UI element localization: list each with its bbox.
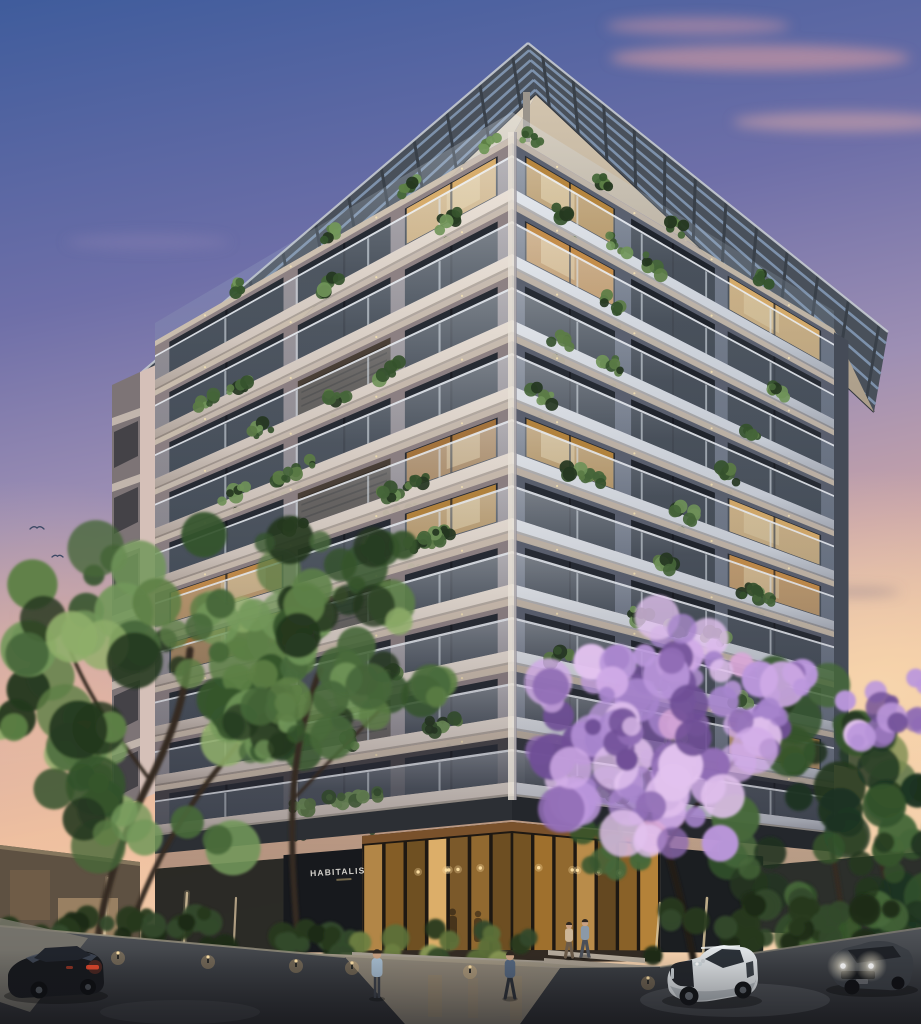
foliage <box>206 589 236 619</box>
shape <box>531 133 538 140</box>
shape <box>664 216 677 229</box>
foliage <box>675 719 712 756</box>
scene-canvas: HABITALIS <box>0 0 921 1024</box>
pendant-light <box>571 868 574 871</box>
interior-figure-head <box>475 911 481 917</box>
shape <box>678 220 690 232</box>
foliage <box>793 678 811 696</box>
foliage <box>622 717 641 736</box>
foliage <box>785 783 813 811</box>
pendant-light <box>456 868 459 871</box>
shape <box>236 278 245 287</box>
foliage <box>835 690 856 711</box>
hedge-shrub <box>744 894 766 916</box>
shape <box>486 136 495 145</box>
foliage <box>550 747 592 789</box>
foliage <box>203 825 233 855</box>
foliage <box>5 632 49 676</box>
foliage <box>599 687 615 703</box>
bottom-vignette <box>0 950 921 1024</box>
foliage <box>107 633 163 689</box>
foliage <box>345 663 391 709</box>
foliage <box>426 687 447 708</box>
foliage <box>175 659 205 689</box>
foliage <box>670 684 709 723</box>
foliage <box>769 707 788 726</box>
foliage <box>353 527 393 567</box>
hedge-shrub <box>660 909 682 931</box>
foliage <box>538 786 585 833</box>
foliage <box>310 714 355 759</box>
foliage <box>818 788 863 833</box>
lobby-glass-panel <box>534 835 552 950</box>
foliage <box>636 791 667 822</box>
foliage <box>887 712 908 733</box>
foliage <box>849 851 874 876</box>
foliage <box>701 774 745 818</box>
foliage <box>857 747 900 790</box>
pendant-light <box>445 868 448 871</box>
foliage <box>667 614 697 644</box>
foliage <box>616 749 637 770</box>
pergola-beam <box>634 128 636 188</box>
foliage <box>605 859 627 881</box>
foliage <box>126 819 162 855</box>
interior-figure-head <box>449 909 456 916</box>
foliage <box>287 725 305 743</box>
hedge-shrub <box>882 900 900 918</box>
hedge-shrub <box>141 913 166 938</box>
hedge-shrub <box>683 907 710 934</box>
hedge-shrub <box>849 894 881 926</box>
foliage <box>310 531 331 552</box>
corner-pier <box>508 132 517 800</box>
foliage <box>93 820 119 846</box>
foliage <box>862 784 906 828</box>
foliage <box>385 608 412 635</box>
foliage <box>292 568 332 608</box>
foliage <box>276 613 321 658</box>
foliage <box>241 687 280 726</box>
hedge-shrub <box>439 931 459 951</box>
hedge-shrub <box>714 916 738 940</box>
foliage <box>275 692 297 714</box>
architectural-render: HABITALIS <box>0 0 921 1024</box>
torso <box>581 926 589 940</box>
pendant-light <box>576 869 579 872</box>
foliage <box>702 825 739 862</box>
foliage <box>657 827 689 859</box>
foliage <box>49 701 107 759</box>
torso <box>565 928 573 942</box>
hedge-shrub <box>99 916 114 931</box>
foliage <box>133 578 182 627</box>
shape <box>406 177 418 189</box>
lobby-glass-panel <box>407 841 425 951</box>
pendant-light <box>537 866 540 869</box>
foliage <box>171 806 204 839</box>
hedge-shrub <box>197 907 211 921</box>
shape <box>329 222 342 235</box>
foliage <box>874 832 894 852</box>
foliage <box>884 862 905 883</box>
hedge-shrub <box>275 933 291 949</box>
foliage <box>739 858 761 880</box>
shape <box>522 131 529 138</box>
hedge-shrub <box>788 896 815 923</box>
foliage <box>313 681 349 717</box>
foliage <box>585 719 601 735</box>
hedge-shrub <box>483 925 501 943</box>
shape <box>599 173 607 181</box>
foliage <box>685 807 706 828</box>
foliage <box>847 722 876 751</box>
foliage <box>88 773 109 794</box>
foliage <box>731 727 778 774</box>
foliage <box>813 832 845 864</box>
hedge-shrub <box>178 914 196 932</box>
foliage <box>209 642 230 663</box>
hedge-shrub <box>204 919 219 934</box>
foliage <box>532 668 569 705</box>
foliage <box>255 533 275 553</box>
pendant-light <box>416 870 419 873</box>
foliage <box>0 714 28 742</box>
foliage <box>709 659 733 683</box>
corner-edge-shade <box>514 132 517 800</box>
foliage <box>582 856 600 874</box>
foliage <box>185 613 213 641</box>
shape <box>603 182 613 192</box>
foliage <box>659 648 685 674</box>
foliage <box>181 512 226 557</box>
hedge-shrub <box>520 929 538 947</box>
pendant-light <box>479 866 482 869</box>
